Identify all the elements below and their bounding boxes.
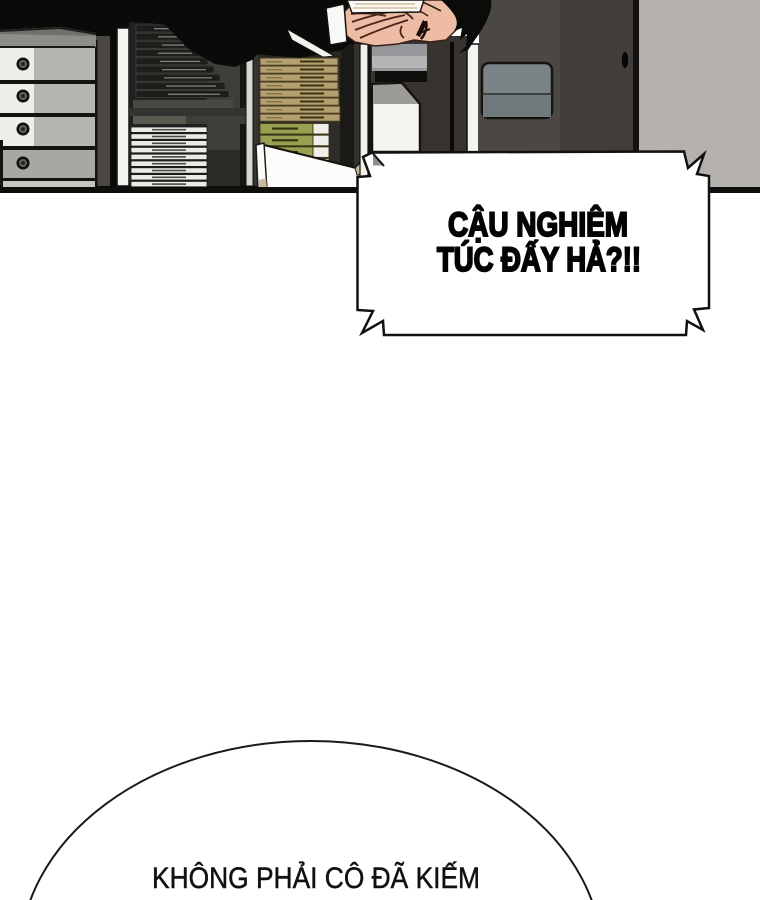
svg-text:CẬU NGHIÊM: CẬU NGHIÊM	[448, 206, 628, 244]
svg-text:TÚC ĐẤY HẢ?!!: TÚC ĐẤY HẢ?!!	[437, 241, 641, 279]
svg-text:KHÔNG PHẢI CÔ ĐÃ KIẾM: KHÔNG PHẢI CÔ ĐÃ KIẾM	[152, 861, 480, 895]
